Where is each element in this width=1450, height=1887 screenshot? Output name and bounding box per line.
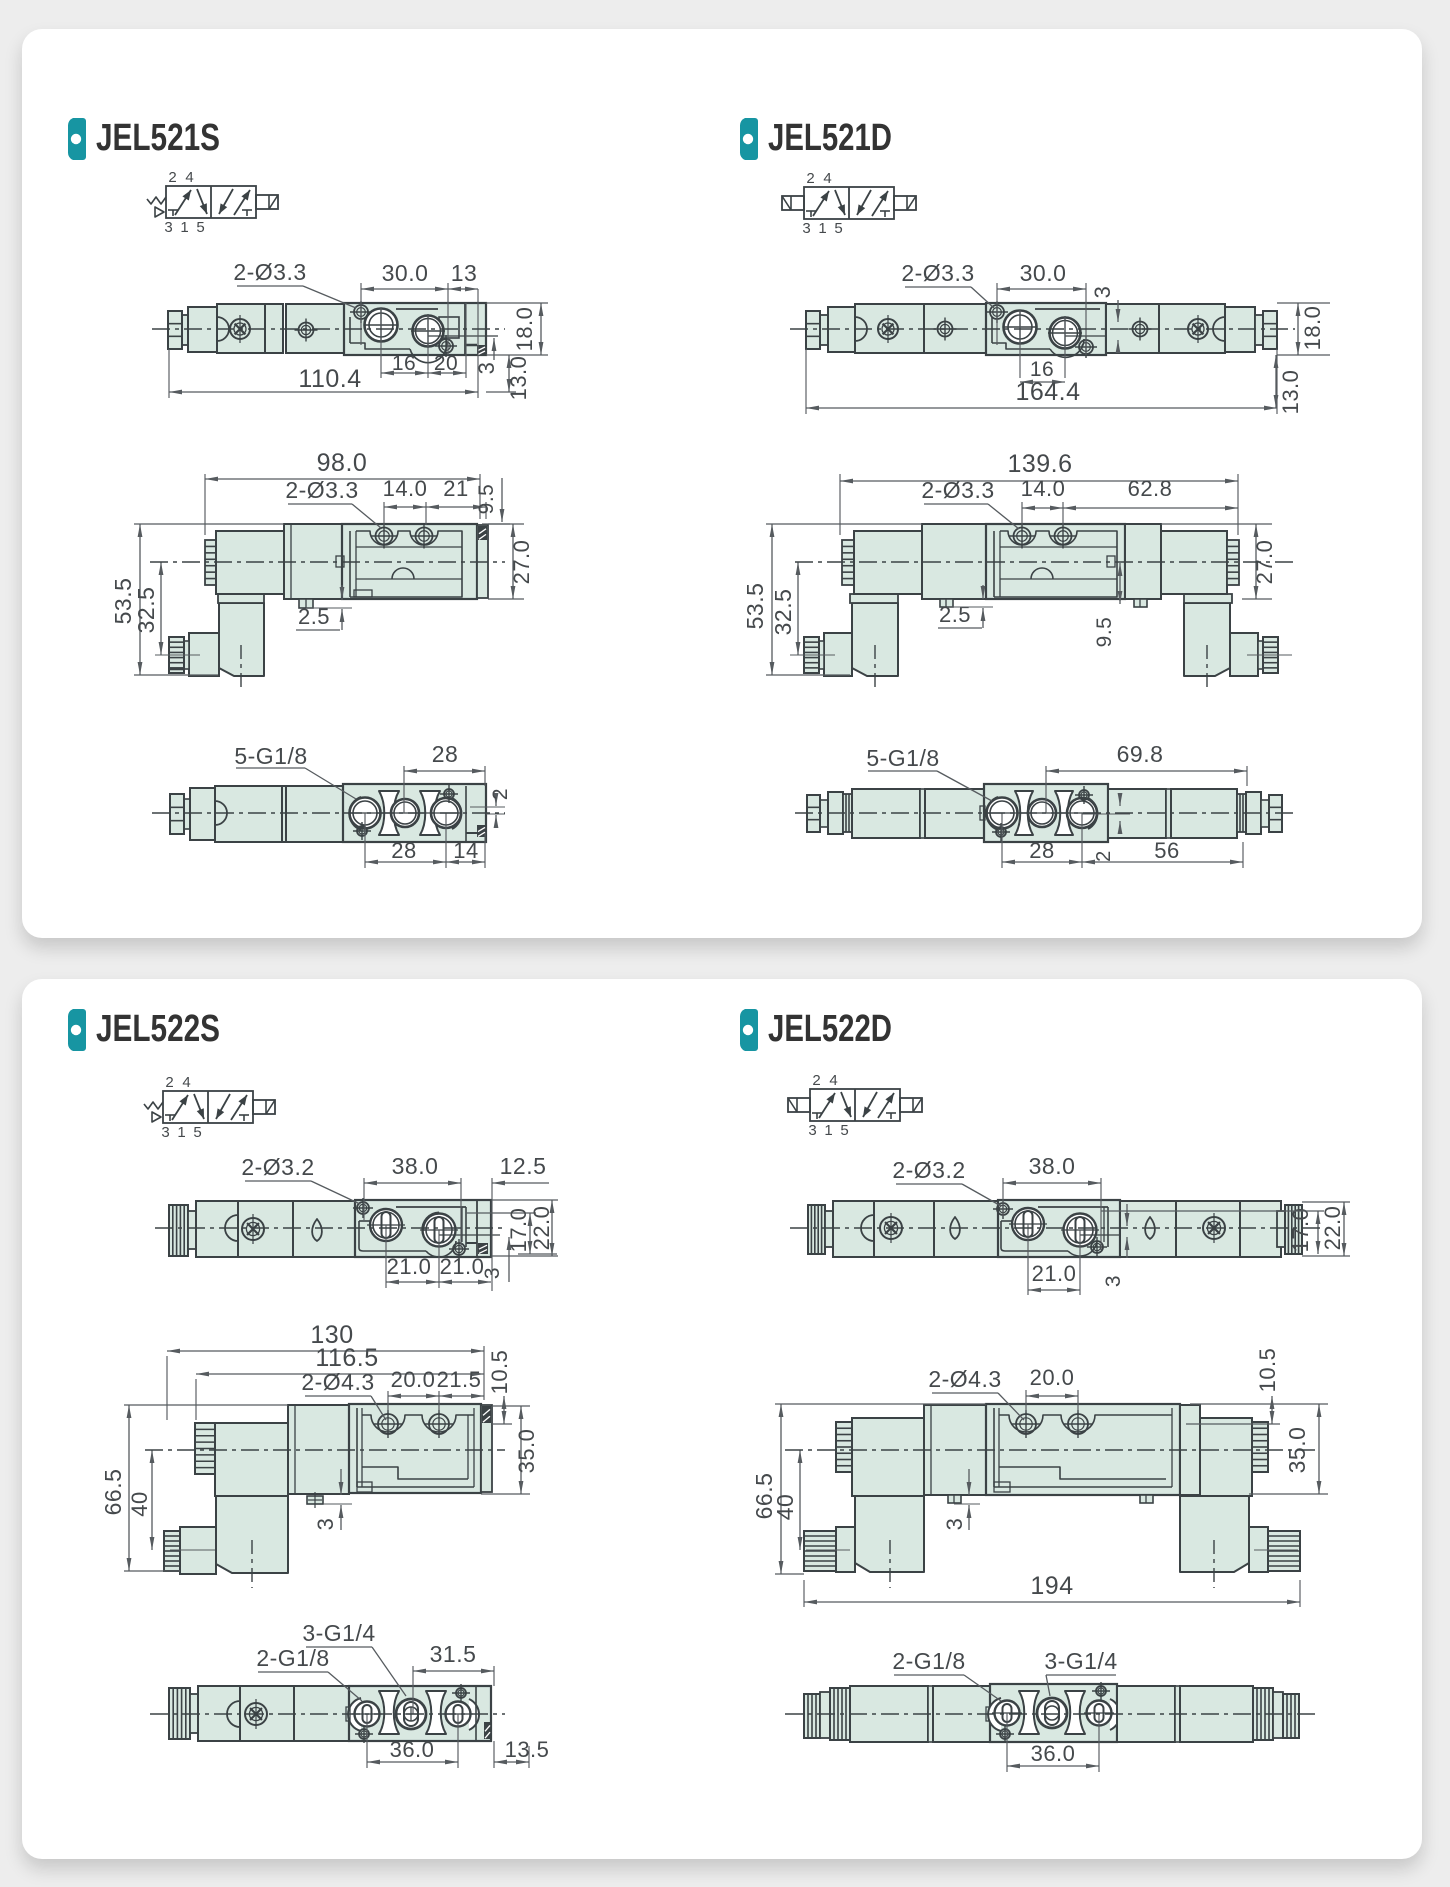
svg-text:2-Ø3.2: 2-Ø3.2 (241, 1154, 314, 1180)
svg-text:2-Ø3.3: 2-Ø3.3 (921, 477, 994, 503)
svg-text:JEL521D: JEL521D (768, 117, 892, 159)
svg-text:5: 5 (193, 1124, 202, 1141)
svg-text:14.0: 14.0 (383, 476, 428, 501)
svg-text:3: 3 (1102, 1275, 1125, 1287)
svg-text:JEL522D: JEL522D (768, 1008, 892, 1050)
svg-text:3: 3 (313, 1518, 338, 1531)
svg-text:4: 4 (823, 170, 832, 187)
svg-text:36.0: 36.0 (390, 1737, 435, 1762)
svg-text:21: 21 (443, 476, 468, 501)
svg-text:3: 3 (942, 1518, 967, 1531)
svg-text:13.5: 13.5 (505, 1737, 550, 1762)
svg-text:5: 5 (840, 1122, 849, 1139)
svg-text:1: 1 (824, 1122, 833, 1139)
svg-text:3: 3 (481, 1267, 504, 1279)
svg-text:66.5: 66.5 (100, 1469, 126, 1516)
svg-text:3: 3 (164, 219, 173, 236)
svg-text:3: 3 (802, 220, 811, 237)
svg-text:2-Ø4.3: 2-Ø4.3 (301, 1369, 374, 1395)
svg-text:2: 2 (812, 1072, 821, 1089)
svg-text:36.0: 36.0 (1031, 1741, 1076, 1766)
svg-text:JEL522S: JEL522S (96, 1008, 220, 1050)
svg-text:38.0: 38.0 (1029, 1153, 1076, 1179)
svg-text:2: 2 (168, 169, 177, 186)
svg-text:14.0: 14.0 (1021, 476, 1066, 501)
svg-text:2-G1/8: 2-G1/8 (256, 1645, 329, 1671)
svg-text:22.0: 22.0 (529, 1206, 554, 1251)
svg-text:30.0: 30.0 (382, 260, 429, 286)
svg-text:5-G1/8: 5-G1/8 (866, 745, 939, 771)
svg-text:20.0: 20.0 (1030, 1365, 1075, 1390)
svg-text:53.5: 53.5 (742, 583, 768, 630)
svg-text:2: 2 (489, 788, 512, 800)
svg-text:22.0: 22.0 (1320, 1206, 1345, 1251)
svg-text:56: 56 (1154, 838, 1179, 863)
svg-text:13.0: 13.0 (506, 356, 531, 401)
svg-text:2-G1/8: 2-G1/8 (892, 1648, 965, 1674)
svg-text:1: 1 (818, 220, 827, 237)
svg-text:17.0: 17.0 (1288, 1208, 1313, 1253)
svg-text:21.0: 21.0 (1032, 1261, 1077, 1286)
svg-text:10.5: 10.5 (1255, 1348, 1280, 1393)
svg-text:2-Ø3.3: 2-Ø3.3 (901, 260, 974, 286)
svg-text:3: 3 (808, 1122, 817, 1139)
svg-text:40: 40 (127, 1491, 152, 1516)
svg-text:30.0: 30.0 (1020, 260, 1067, 286)
svg-text:139.6: 139.6 (1007, 450, 1072, 478)
svg-text:1: 1 (180, 219, 189, 236)
svg-text:28: 28 (1029, 838, 1054, 863)
svg-text:35.0: 35.0 (514, 1429, 539, 1474)
svg-text:21.0: 21.0 (440, 1254, 485, 1279)
svg-text:14: 14 (453, 838, 478, 863)
svg-text:20.0: 20.0 (391, 1367, 436, 1392)
svg-text:9.5: 9.5 (1093, 617, 1116, 648)
svg-text:98.0: 98.0 (317, 449, 368, 477)
svg-text:3-G1/4: 3-G1/4 (1044, 1648, 1117, 1674)
svg-text:5: 5 (834, 220, 843, 237)
svg-text:2.5: 2.5 (939, 602, 971, 627)
svg-text:13.0: 13.0 (1278, 370, 1303, 415)
svg-text:32.5: 32.5 (133, 587, 159, 634)
svg-text:17.0: 17.0 (506, 1208, 531, 1253)
svg-text:116.5: 116.5 (315, 1344, 378, 1372)
svg-text:110.4: 110.4 (298, 365, 361, 393)
svg-text:21.5: 21.5 (437, 1367, 482, 1392)
svg-text:32.5: 32.5 (770, 589, 796, 636)
svg-text:3-G1/4: 3-G1/4 (302, 1620, 375, 1646)
svg-text:4: 4 (185, 169, 194, 186)
svg-text:164.4: 164.4 (1015, 378, 1080, 406)
svg-text:18.0: 18.0 (1300, 306, 1325, 351)
svg-text:21.0: 21.0 (387, 1254, 432, 1279)
svg-text:13: 13 (451, 260, 478, 286)
svg-text:10.5: 10.5 (487, 1350, 512, 1395)
svg-text:3: 3 (161, 1124, 170, 1141)
svg-text:2: 2 (1093, 850, 1115, 862)
svg-text:1: 1 (177, 1124, 186, 1141)
svg-text:12.5: 12.5 (500, 1153, 547, 1179)
svg-text:28: 28 (432, 741, 459, 767)
svg-text:69.8: 69.8 (1117, 741, 1164, 767)
svg-text:194: 194 (1030, 1572, 1073, 1600)
svg-text:16: 16 (392, 352, 416, 375)
svg-text:4: 4 (829, 1072, 838, 1089)
svg-text:18.0: 18.0 (512, 307, 537, 352)
svg-text:2-Ø4.3: 2-Ø4.3 (928, 1366, 1001, 1392)
svg-text:20: 20 (434, 352, 458, 375)
svg-text:9.5: 9.5 (475, 484, 498, 515)
svg-text:5-G1/8: 5-G1/8 (234, 743, 307, 769)
svg-text:JEL521S: JEL521S (96, 117, 220, 159)
svg-text:38.0: 38.0 (392, 1153, 439, 1179)
svg-text:4: 4 (182, 1074, 191, 1091)
svg-text:2: 2 (165, 1074, 174, 1091)
svg-text:2-Ø3.3: 2-Ø3.3 (233, 259, 306, 285)
svg-text:2: 2 (806, 170, 815, 187)
svg-text:5: 5 (196, 219, 205, 236)
svg-text:62.8: 62.8 (1128, 476, 1173, 501)
svg-text:3: 3 (1090, 286, 1115, 299)
svg-text:28: 28 (391, 838, 416, 863)
svg-text:31.5: 31.5 (430, 1641, 477, 1667)
svg-text:27.0: 27.0 (509, 540, 534, 585)
svg-text:40: 40 (772, 1494, 798, 1521)
svg-text:2-Ø3.3: 2-Ø3.3 (285, 477, 358, 503)
svg-text:2-Ø3.2: 2-Ø3.2 (892, 1157, 965, 1183)
